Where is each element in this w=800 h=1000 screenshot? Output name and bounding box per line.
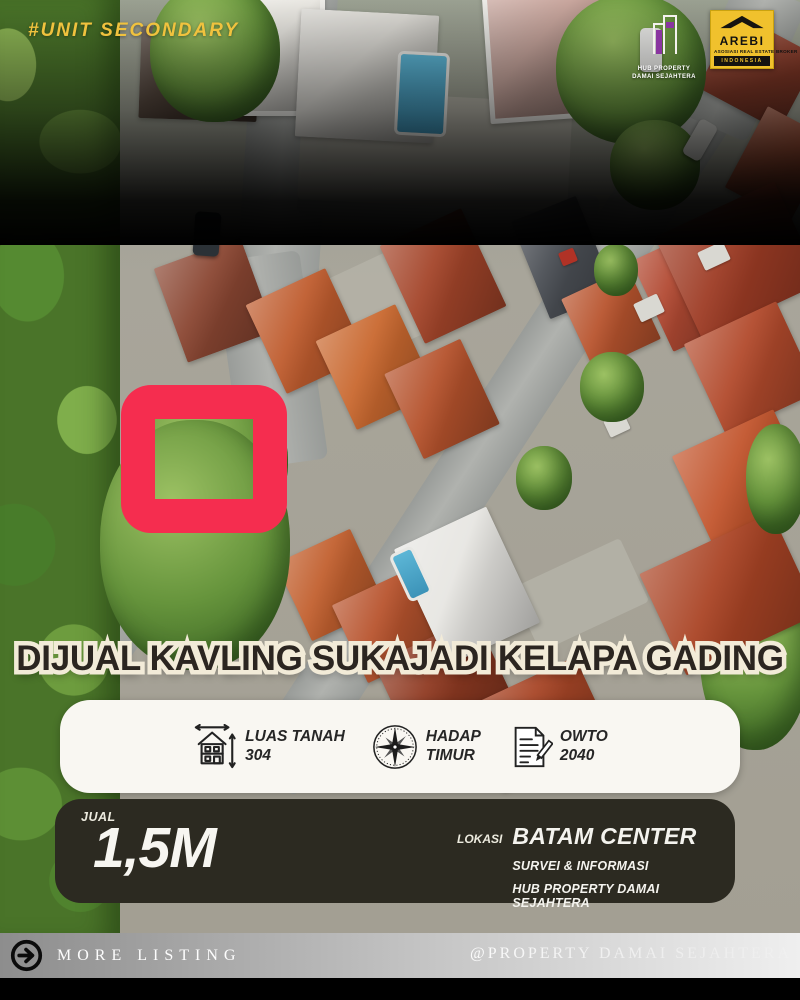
spec-label: OWTO (560, 728, 608, 746)
spec-value: 2040 (560, 747, 608, 765)
arebi-logo-bar: INDONESIA (714, 56, 770, 66)
arrow-circle-icon (10, 939, 43, 972)
location-block: LOKASI BATAM CENTER SURVEI & INFORMASI H… (457, 823, 735, 910)
photo-trees (580, 352, 644, 422)
arebi-roof-icon (718, 14, 766, 29)
location-note-2: HUB PROPERTY DAMAI SEJAHTERA (512, 882, 735, 910)
spec-document: OWTO 2040 (507, 724, 608, 770)
photo-trees (594, 244, 638, 296)
arebi-logo-subtitle: ASOSIASI REAL ESTATE BROKER (714, 49, 770, 54)
location-label: LOKASI (457, 832, 502, 910)
location-value: BATAM CENTER (512, 823, 735, 850)
property-logo-line1: HUB PROPERTY (638, 66, 690, 72)
compass-icon (371, 723, 419, 771)
instagram-handle: @PROPERTY DAMAI SEJAHTERA (470, 945, 792, 963)
price-card: JUAL 1,5M LOKASI BATAM CENTER SURVEI & I… (55, 799, 735, 903)
property-logo-icon (642, 10, 686, 60)
flyer: #UNIT SECONDARY HUB PROPERTY DAMAI SEJAH… (0, 0, 800, 1000)
footer-bar: MORE LISTING @PROPERTY DAMAI SEJAHTERA (0, 933, 800, 978)
listing-title: DIJUAL KAVLING SUKAJADI KELAPA GADING (0, 640, 800, 679)
spec-value: TIMUR (426, 747, 481, 765)
property-logo-line2: DAMAI SEJAHTERA (632, 74, 696, 80)
more-listing-label: MORE LISTING (57, 947, 241, 965)
photo-trees (746, 424, 800, 534)
house-measure-icon (192, 724, 238, 770)
photo-trees (516, 446, 572, 510)
arebi-logo: AREBI ASOSIASI REAL ESTATE BROKER INDONE… (710, 10, 774, 69)
brand-logos: HUB PROPERTY DAMAI SEJAHTERA AREBI ASOSI… (632, 10, 774, 82)
price-value: 1,5M (93, 815, 216, 881)
plot-highlight-box (121, 385, 287, 533)
more-listing-link[interactable]: MORE LISTING (10, 933, 241, 978)
spec-label: LUAS TANAH (245, 728, 345, 746)
spec-land-area: LUAS TANAH 304 (192, 724, 345, 770)
info-card: LUAS TANAH 304 HADAP TIMUR (60, 700, 740, 793)
spec-facing: HADAP TIMUR (371, 723, 481, 771)
document-pencil-icon (507, 724, 553, 770)
spec-value: 304 (245, 747, 345, 765)
photo-pavement (511, 538, 649, 652)
location-note-1: SURVEI & INFORMASI (512, 859, 735, 873)
arebi-logo-name: AREBI (714, 35, 770, 47)
spec-label: HADAP (426, 728, 481, 746)
hashtag-badge: #UNIT SECONDARY (28, 20, 239, 42)
property-logo: HUB PROPERTY DAMAI SEJAHTERA (632, 10, 696, 82)
